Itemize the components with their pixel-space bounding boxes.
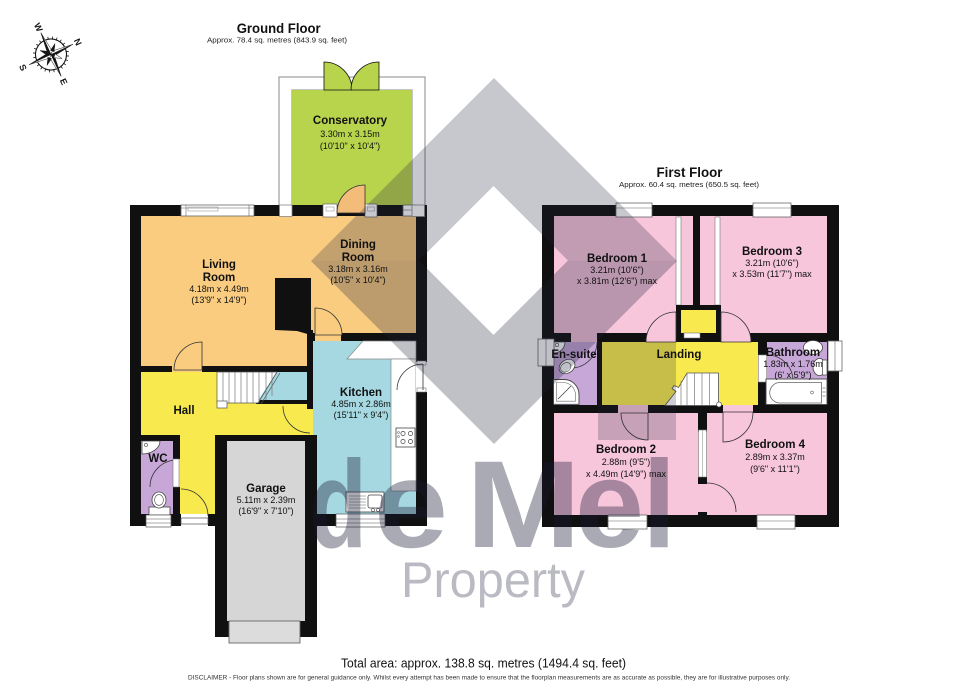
svg-text:x 4.49m (14'9") max: x 4.49m (14'9") max (586, 469, 666, 479)
svg-text:(10'5" x 10'4"): (10'5" x 10'4") (330, 275, 385, 285)
svg-text:2.89m x 3.37m: 2.89m x 3.37m (745, 452, 805, 462)
svg-text:Total area: approx. 138.8 sq.: Total area: approx. 138.8 sq. metres (14… (341, 656, 626, 671)
svg-text:(16'9" x 7'10"): (16'9" x 7'10") (238, 506, 293, 516)
svg-text:(9'6" x 11'1"): (9'6" x 11'1") (750, 464, 800, 474)
svg-text:Bedroom 1: Bedroom 1 (587, 253, 648, 265)
svg-text:Kitchen: Kitchen (340, 387, 382, 399)
svg-text:2.88m (9'5"): 2.88m (9'5") (602, 457, 650, 467)
svg-text:Ground Floor: Ground Floor (237, 21, 322, 36)
svg-text:d: d (309, 436, 367, 574)
svg-text:(10'10" x 10'4"): (10'10" x 10'4") (320, 141, 380, 151)
svg-text:Room: Room (203, 272, 236, 284)
svg-text:3.21m (10'6"): 3.21m (10'6") (745, 258, 798, 268)
svg-text:3.21m (10'6"): 3.21m (10'6") (590, 265, 643, 275)
svg-text:Dining: Dining (340, 239, 376, 251)
svg-text:Approx. 78.4 sq. metres (843.9: Approx. 78.4 sq. metres (843.9 sq. feet) (207, 36, 347, 45)
svg-text:Hall: Hall (173, 405, 194, 417)
svg-text:Landing: Landing (657, 349, 702, 361)
svg-text:4.18m x 4.49m: 4.18m x 4.49m (189, 284, 249, 294)
svg-text:Living: Living (202, 259, 236, 271)
svg-text:Property: Property (401, 552, 585, 608)
svg-text:Bathroom: Bathroom (766, 347, 820, 359)
svg-text:W: W (32, 21, 45, 33)
svg-text:(13'9" x 14'9"): (13'9" x 14'9") (191, 295, 246, 305)
svg-text:DISCLAIMER - Floor plans show: DISCLAIMER - Floor plans shown are for g… (188, 675, 790, 682)
svg-text:x 3.53m (11'7") max: x 3.53m (11'7") max (732, 269, 812, 279)
svg-text:S: S (17, 63, 29, 73)
svg-text:Approx. 60.4 sq. metres (650.5: Approx. 60.4 sq. metres (650.5 sq. feet) (619, 180, 759, 189)
svg-text:3.18m x 3.16m: 3.18m x 3.16m (328, 264, 388, 274)
svg-text:Room: Room (342, 252, 375, 264)
svg-text:(15'11" x 9'4"): (15'11" x 9'4") (334, 410, 389, 420)
svg-text:En-suite: En-suite (551, 349, 596, 361)
svg-text:Bedroom 2: Bedroom 2 (596, 444, 656, 456)
svg-text:First Floor: First Floor (657, 165, 724, 180)
svg-text:E: E (58, 77, 70, 87)
svg-text:x 3.81m (12'6") max: x 3.81m (12'6") max (577, 276, 657, 286)
svg-text:Bedroom 3: Bedroom 3 (742, 246, 802, 258)
svg-text:4.85m x 2.86m: 4.85m x 2.86m (331, 399, 391, 409)
svg-text:(6' x 5'9"): (6' x 5'9") (774, 370, 811, 380)
svg-text:3.30m x 3.15m: 3.30m x 3.15m (320, 129, 380, 139)
svg-text:5.11m x 2.39m: 5.11m x 2.39m (237, 495, 296, 505)
svg-text:Conservatory: Conservatory (313, 115, 388, 127)
svg-text:WC: WC (148, 453, 167, 465)
svg-text:N: N (72, 37, 84, 47)
svg-text:1.83m x 1.76m: 1.83m x 1.76m (763, 359, 823, 369)
svg-text:Bedroom 4: Bedroom 4 (745, 439, 806, 451)
svg-text:Garage: Garage (246, 483, 286, 495)
